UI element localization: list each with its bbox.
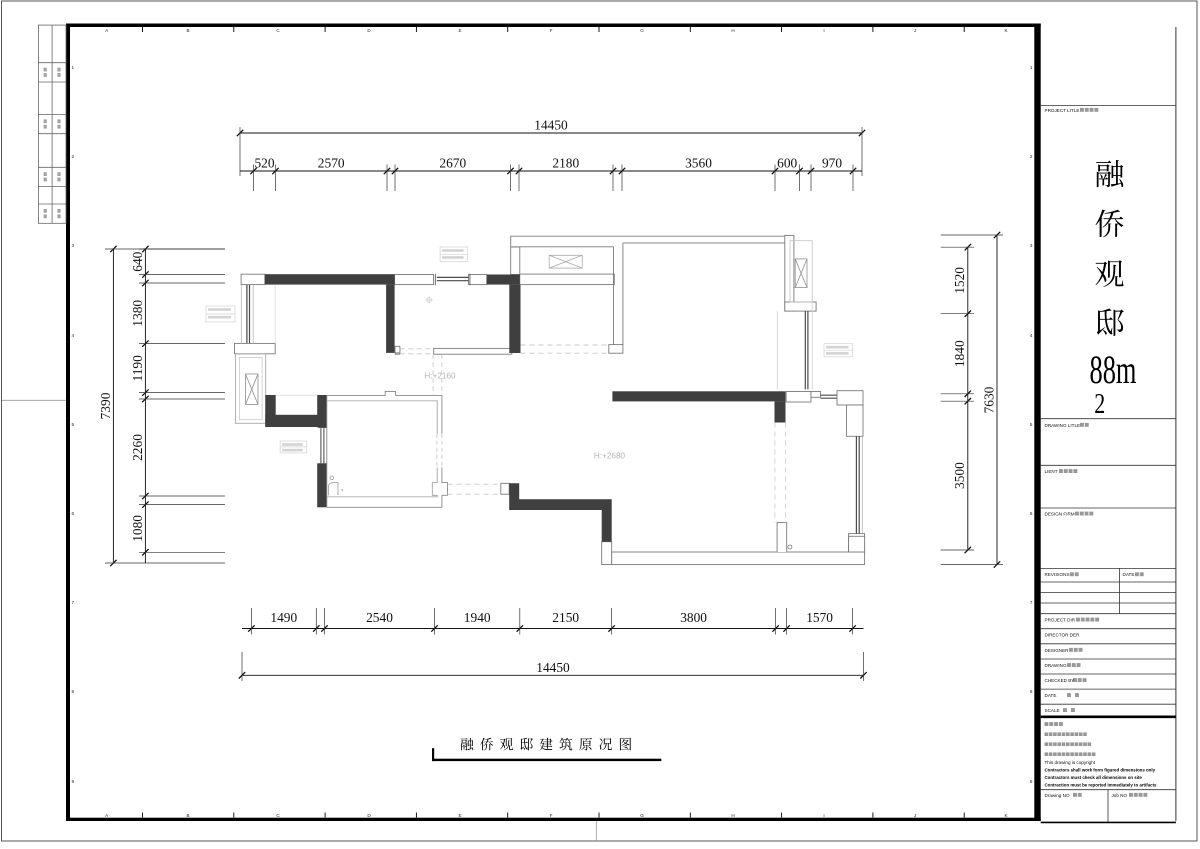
svg-text:H:+2680: H:+2680: [594, 451, 626, 460]
svg-text:970: 970: [822, 156, 842, 171]
svg-text:7: 7: [1030, 600, 1033, 605]
svg-text:2: 2: [1030, 154, 1033, 159]
svg-text:7: 7: [72, 600, 75, 605]
svg-text:6: 6: [1030, 511, 1033, 516]
svg-text:DRAWING LITLE: DRAWING LITLE: [1045, 423, 1081, 428]
svg-text:2570: 2570: [318, 156, 345, 171]
svg-text:1570: 1570: [806, 610, 833, 625]
svg-text:8: 8: [72, 689, 75, 694]
svg-text:CHECKED BY: CHECKED BY: [1045, 678, 1075, 683]
svg-text:H: H: [731, 813, 734, 818]
svg-text:3: 3: [72, 243, 75, 248]
svg-text:REVISIONS: REVISIONS: [1045, 572, 1070, 577]
svg-text:Job NO: Job NO: [1112, 793, 1128, 798]
svg-text:14450: 14450: [536, 660, 570, 675]
svg-text:1080: 1080: [130, 515, 145, 542]
svg-text:3800: 3800: [680, 610, 707, 625]
svg-text:H:+2160: H:+2160: [424, 371, 456, 380]
svg-text:I: I: [823, 813, 824, 818]
svg-text:This drawing is copyright: This drawing is copyright: [1045, 760, 1096, 765]
svg-text:640: 640: [130, 251, 145, 271]
svg-text:DATE: DATE: [1123, 572, 1135, 577]
svg-text:DESIGNER: DESIGNER: [1045, 648, 1070, 653]
svg-text:2: 2: [1094, 389, 1105, 420]
svg-text:DESIGN FIRM: DESIGN FIRM: [1045, 512, 1075, 517]
svg-text:7390: 7390: [98, 392, 113, 419]
svg-text:J: J: [914, 28, 916, 33]
svg-text:7630: 7630: [981, 386, 996, 413]
svg-text:Contraction must be reported I: Contraction must be reported Immediately…: [1045, 782, 1158, 787]
svg-text:J: J: [914, 813, 916, 818]
svg-text:2540: 2540: [366, 610, 393, 625]
svg-text:4: 4: [72, 333, 75, 338]
svg-text:DRAWING: DRAWING: [1045, 663, 1067, 668]
svg-text:B: B: [186, 813, 189, 818]
svg-text:1190: 1190: [130, 355, 145, 382]
svg-text:F: F: [550, 813, 553, 818]
svg-text:3560: 3560: [685, 156, 712, 171]
svg-text:5: 5: [1030, 422, 1033, 427]
svg-text:2670: 2670: [439, 156, 466, 171]
svg-text:1490: 1490: [270, 610, 297, 625]
svg-text:1: 1: [1030, 65, 1033, 70]
svg-text:2260: 2260: [130, 434, 145, 461]
svg-text:PROJECT LITLE: PROJECT LITLE: [1045, 108, 1080, 113]
svg-text:2180: 2180: [552, 156, 579, 171]
svg-text:DATE: DATE: [1045, 693, 1057, 698]
svg-text:Contractors shall work form fi: Contractors shall work form figured dime…: [1045, 767, 1156, 772]
svg-text:PROJECT DIR: PROJECT DIR: [1045, 618, 1076, 623]
svg-text:I: I: [823, 28, 824, 33]
svg-text:6: 6: [72, 511, 75, 516]
svg-text:2: 2: [72, 154, 75, 159]
svg-text:4: 4: [1030, 333, 1033, 338]
svg-text:9: 9: [72, 779, 75, 784]
svg-text:5: 5: [72, 422, 75, 427]
svg-text:Drawing NO: Drawing NO: [1045, 793, 1070, 798]
svg-text:LIENT: LIENT: [1045, 469, 1058, 474]
svg-text:G: G: [640, 813, 644, 818]
svg-text:Contractors must check all dim: Contractors must check all dimensions on…: [1045, 775, 1143, 780]
svg-text:600: 600: [777, 156, 797, 171]
svg-text:88m: 88m: [1090, 347, 1137, 392]
svg-text:8: 8: [1030, 689, 1033, 694]
svg-text:G: G: [640, 28, 644, 33]
svg-text:1380: 1380: [130, 300, 145, 327]
svg-text:F: F: [550, 28, 553, 33]
svg-text:DIRECTOR DER: DIRECTOR DER: [1045, 633, 1081, 638]
svg-text:14450: 14450: [534, 118, 568, 133]
svg-text:H: H: [731, 28, 734, 33]
svg-text:B: B: [186, 28, 189, 33]
svg-text:1840: 1840: [952, 340, 967, 367]
svg-text:520: 520: [254, 156, 274, 171]
svg-text:E: E: [458, 28, 461, 33]
svg-text:1520: 1520: [952, 267, 967, 294]
svg-text:9: 9: [1030, 779, 1033, 784]
svg-text:3: 3: [1030, 243, 1033, 248]
svg-text:SCALE: SCALE: [1045, 708, 1060, 713]
svg-text:1: 1: [72, 65, 75, 70]
svg-text:3500: 3500: [952, 462, 967, 489]
svg-text:1940: 1940: [464, 610, 491, 625]
svg-text:2150: 2150: [552, 610, 579, 625]
svg-text:E: E: [458, 813, 461, 818]
